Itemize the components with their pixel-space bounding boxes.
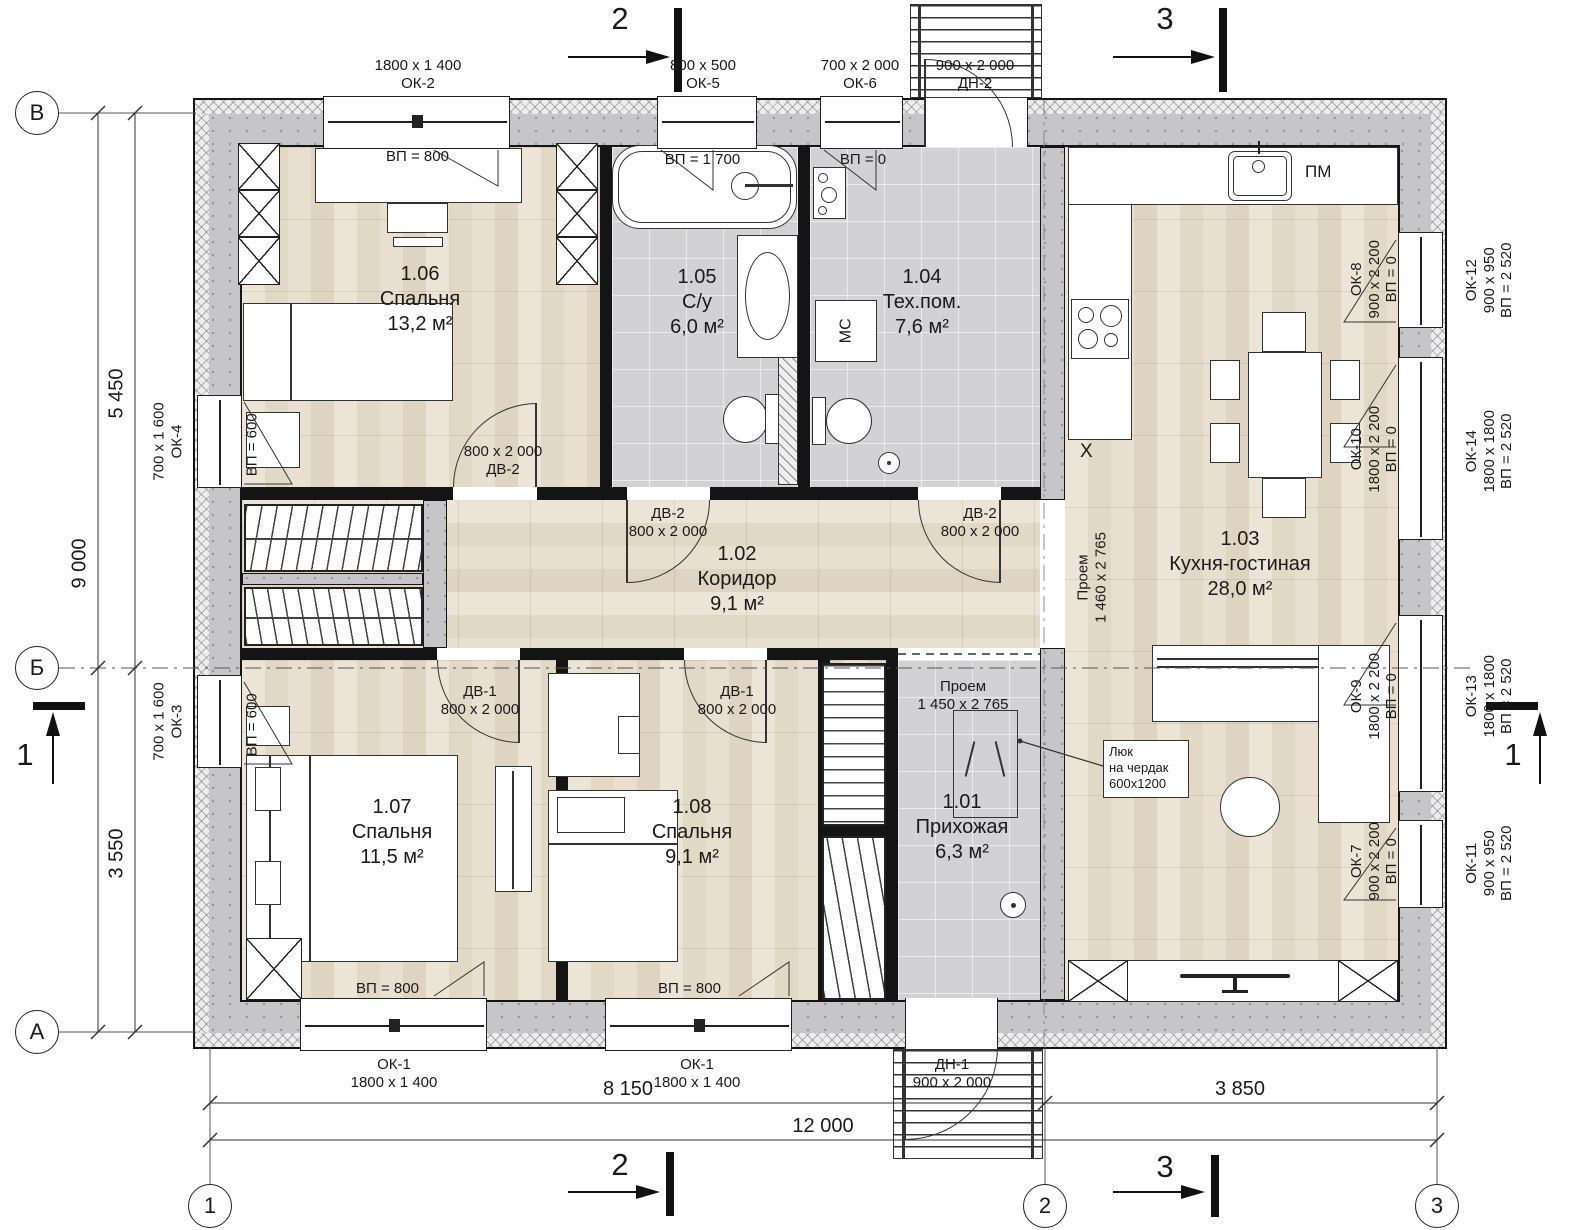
glazing <box>1420 237 1422 325</box>
axis-bubble-B: В <box>15 91 59 135</box>
window-code: ОК-13 <box>1463 641 1481 751</box>
attic-note-line2: на чердак <box>1109 760 1183 776</box>
window-size: 1800 x 2 200 <box>1365 636 1383 756</box>
dim-left-total: 9 000 <box>68 524 93 604</box>
boiler <box>813 167 846 219</box>
glazing <box>1420 620 1422 789</box>
section-arrowhead <box>1181 1185 1205 1199</box>
wardrobe-107 <box>246 938 302 1000</box>
mullion <box>389 1019 400 1032</box>
room-name: С/у <box>597 290 797 315</box>
sill-label: ВП = 2 520 <box>1498 396 1516 506</box>
boiler-knob <box>818 173 828 183</box>
toilet-tank-105 <box>765 394 779 444</box>
window-code: ОК-10 <box>1348 389 1366 509</box>
burner <box>1100 305 1122 327</box>
window-code: ОК-9 <box>1348 636 1366 756</box>
window-size: 1800 x 1 400 <box>324 1074 464 1092</box>
window-size: 900 x 2 200 <box>1365 219 1383 339</box>
door-code: ДВ-1 <box>677 683 797 701</box>
dining-chair <box>1262 478 1306 518</box>
section-arrowhead <box>46 712 60 736</box>
door-size: 800 x 2 000 <box>677 701 797 719</box>
window-label-ok1-1: ОК-1 1800 x 1 400 <box>324 1056 464 1091</box>
window-code: ОК-2 <box>348 75 488 93</box>
dim-tick <box>1430 1133 1444 1147</box>
door-size: 800 x 2 000 <box>608 523 728 541</box>
sill-label: ВП = 0 <box>1383 801 1401 921</box>
room-name: Спальня <box>320 287 520 312</box>
dim-tick <box>128 106 142 120</box>
dim-tick <box>91 106 105 120</box>
bath-partition <box>778 357 798 485</box>
door-label-107: ДВ-1 800 x 2 000 <box>420 683 540 718</box>
passage-label-corridor-kitchen: Проем 1 460 x 2 765 <box>1075 513 1110 643</box>
window-size: 900 x 950 <box>1480 808 1498 918</box>
door-gap-dn1 <box>905 998 998 1049</box>
sill-label: ВП = 0 <box>828 151 898 169</box>
window-ok4 <box>197 395 242 488</box>
window-size: 1800 x 1 400 <box>348 57 488 75</box>
room-name: Прихожая <box>862 815 1062 840</box>
tv-cabinet <box>1338 960 1398 1002</box>
room-number: 1.04 <box>822 265 1022 290</box>
door-code: ДВ-2 <box>608 505 728 523</box>
room-name: Спальня <box>292 820 492 845</box>
wardrobe-cell <box>556 143 598 190</box>
wardrobe-cell <box>238 143 280 190</box>
door-label-dn1: ДН-1 900 x 2 000 <box>882 1056 1022 1091</box>
room-area: 9,1 м² <box>637 592 837 617</box>
door-size: 900 x 2 000 <box>905 57 1045 75</box>
toilet-tank-104 <box>812 397 826 445</box>
desk-chair-108 <box>618 716 640 754</box>
tv-cabinet <box>1068 960 1128 1002</box>
window-code: ОК-7 <box>1348 801 1366 921</box>
door-code: ДН-2 <box>905 75 1045 93</box>
wall-corridor-top-2 <box>537 487 627 500</box>
section-arrowhead <box>636 1185 660 1199</box>
glazing <box>662 121 754 123</box>
passage-size: 1 460 x 2 765 <box>1092 513 1110 643</box>
section-number-top-2: 2 <box>600 2 640 36</box>
dim-tick <box>128 661 142 675</box>
hall-floor-drain <box>1000 892 1026 918</box>
window-ok3 <box>197 675 242 768</box>
dining-chair <box>1210 423 1240 463</box>
bed-pillow-line <box>290 304 292 400</box>
window-label-ok7: ОК-7 900 x 2 200 ВП = 0 <box>1348 801 1401 921</box>
dim-tick <box>1430 1096 1444 1110</box>
door-label-106: 800 x 2 000 ДВ-2 <box>443 443 563 478</box>
passage-size: 1 450 x 2 765 <box>893 696 1033 714</box>
room-label-105: 1.05 С/у 6,0 м² <box>597 265 797 340</box>
room-area: 9,1 м² <box>592 845 792 870</box>
window-label-ok2: 1800 x 1 400 ОК-2 <box>348 57 488 92</box>
room-area: 6,0 м² <box>597 315 797 340</box>
section-bar <box>33 702 85 710</box>
window-ok7-ok11 <box>1398 820 1443 908</box>
dresser-line <box>512 771 514 889</box>
door-code: ДВ-2 <box>920 505 1040 523</box>
floor-drain-dot <box>887 461 891 465</box>
section-number-bottom-3: 3 <box>1145 1150 1185 1184</box>
room-number: 1.05 <box>597 265 797 290</box>
window-ok8-ok12 <box>1398 232 1443 328</box>
window-size: 900 x 2 200 <box>1365 801 1383 921</box>
section-arrowhead <box>1191 50 1215 64</box>
window-ok10-ok14 <box>1398 357 1443 540</box>
door-label-bath: ДВ-2 800 x 2 000 <box>608 505 728 540</box>
attic-note-line3: 600x1200 <box>1109 776 1183 792</box>
room-label-103: 1.03 Кухня-гостиная 28,0 м² <box>1140 527 1340 602</box>
tv-stand <box>1233 978 1237 990</box>
dim-tick <box>128 1025 142 1039</box>
boiler-knob <box>821 187 837 203</box>
room-number: 1.06 <box>320 262 520 287</box>
pier-left-closet-divider <box>242 573 423 585</box>
glazing <box>1420 825 1422 905</box>
door-size: 800 x 2 000 <box>420 701 540 719</box>
window-size: 700 x 1 600 <box>151 387 169 497</box>
door-code: ДН-1 <box>882 1056 1022 1074</box>
wall-corridor-bottom-2 <box>520 648 684 660</box>
wall-corridor-bottom-1 <box>242 648 437 660</box>
axis-label: 1 <box>204 1193 216 1219</box>
glazing <box>219 680 221 765</box>
toilet-bowl-105 <box>723 396 768 443</box>
dining-chair <box>1262 312 1306 352</box>
window-label-ok3: 700 x 1 600 ОК-3 <box>151 667 186 777</box>
window-code: ОК-14 <box>1463 396 1481 506</box>
window-size: 700 x 1 600 <box>151 667 169 777</box>
window-label-ok13: ОК-13 1800 x 1800 ВП = 2 520 <box>1463 641 1516 751</box>
passage-name: Проем <box>1075 513 1093 643</box>
burner <box>1104 333 1118 347</box>
wall-corridor-top-3 <box>710 487 918 500</box>
door-size: 800 x 2 000 <box>443 443 563 461</box>
window-size: 900 x 950 <box>1480 225 1498 335</box>
dim-tick <box>91 1025 105 1039</box>
fridge-label: Х <box>1080 443 1093 461</box>
window-label-ok9: ОК-9 1800 x 2 200 ВП = 0 <box>1348 636 1401 756</box>
room-number: 1.02 <box>637 542 837 567</box>
sill-label: ВП = 2 520 <box>1498 641 1516 751</box>
tv-base <box>1222 990 1248 993</box>
glazing <box>825 121 900 123</box>
section-number-top-3: 3 <box>1145 2 1185 36</box>
section-arrowhead <box>1533 712 1547 736</box>
sill-label: ВП = 800 <box>370 148 465 166</box>
axis-label: 2 <box>1039 1193 1051 1219</box>
floor-plan-canvas: В Б А 1 2 3 2 3 2 3 1 1 5 450 9 000 3 55… <box>0 0 1570 1230</box>
window-ok5 <box>657 96 757 149</box>
room-area: 28,0 м² <box>1140 577 1340 602</box>
axis-bubble-3: 3 <box>1415 1184 1459 1228</box>
closet-corridor-upper <box>244 504 423 572</box>
closet-corridor-lower <box>244 587 423 646</box>
dishwasher-label: ПМ <box>1305 163 1331 181</box>
door-code: ДВ-2 <box>443 461 563 479</box>
hall-drain-dot <box>1011 903 1016 908</box>
room-area: 6,3 м² <box>862 840 1062 865</box>
section-bar <box>1211 1155 1219 1217</box>
section-number-bottom-2: 2 <box>600 1148 640 1182</box>
window-ok1-2 <box>605 998 792 1051</box>
room-name: Коридор <box>637 567 837 592</box>
door-label-tech: ДВ-2 800 x 2 000 <box>920 505 1040 540</box>
monitor-106 <box>393 237 443 247</box>
window-size: 1800 x 1 400 <box>627 1074 767 1092</box>
attic-note-box: Люк на чердак 600x1200 <box>1103 740 1189 798</box>
door-size: 900 x 2 000 <box>882 1074 1022 1092</box>
window-ok2 <box>323 96 510 149</box>
glazing <box>1420 362 1422 537</box>
room-number: 1.08 <box>592 795 792 820</box>
passage-label-hall: Проем 1 450 x 2 765 <box>893 678 1033 713</box>
room-label-108: 1.08 Спальня 9,1 м² <box>592 795 792 870</box>
sill-label: ВП = 0 <box>1383 219 1401 339</box>
desk-chair-106 <box>387 203 448 233</box>
dim-left-bottom: 3 550 <box>105 814 130 894</box>
wardrobe-cell <box>238 237 280 285</box>
dining-table <box>1248 352 1322 478</box>
window-code: ОК-12 <box>1463 225 1481 335</box>
sill-label: ВП = 0 <box>1383 636 1401 756</box>
boiler-knob <box>818 206 827 215</box>
room-number: 1.07 <box>292 795 492 820</box>
door-label-dn2: 900 x 2 000 ДН-2 <box>905 57 1045 92</box>
pillow <box>255 767 281 811</box>
floor-drain <box>878 452 900 474</box>
window-code: ОК-3 <box>168 667 186 777</box>
wardrobe-cell <box>238 190 280 237</box>
window-label-ok5: 800 x 500 ОК-5 <box>633 57 773 92</box>
window-code: ОК-1 <box>324 1056 464 1074</box>
window-label-ok11: ОК-11 900 x 950 ВП = 2 520 <box>1463 808 1516 918</box>
dim-tick <box>91 661 105 675</box>
wardrobe-cell <box>556 237 598 285</box>
window-size: 1800 x 1800 <box>1480 396 1498 506</box>
attic-hatch-mark <box>965 741 976 776</box>
sill-label: ВП = 800 <box>642 980 737 998</box>
room-area: 13,2 м² <box>320 312 520 337</box>
attic-hatch-mark <box>995 741 1006 776</box>
burner <box>1078 307 1094 323</box>
axis-label: А <box>30 1019 45 1045</box>
room-name: Спальня <box>592 820 792 845</box>
mullion <box>694 1019 705 1032</box>
sill-label: ВП = 800 <box>340 980 435 998</box>
mullion <box>412 115 423 128</box>
wall-corridor-top-4 <box>1001 487 1040 500</box>
axis-bubble-mid: Б <box>15 646 59 690</box>
window-code: ОК-8 <box>1348 219 1366 339</box>
glazing <box>219 400 221 485</box>
window-size: 800 x 500 <box>633 57 773 75</box>
pier-left-closet <box>423 500 447 648</box>
window-code: ОК-4 <box>168 387 186 497</box>
kitchen-sink <box>1228 151 1292 201</box>
axis-bubble-1: 1 <box>188 1184 232 1228</box>
axis-label: В <box>30 100 45 126</box>
door-size: 800 x 2 000 <box>920 523 1040 541</box>
dim-left-top: 5 450 <box>105 354 130 434</box>
passage-name: Проем <box>893 678 1033 696</box>
dining-chair <box>1210 360 1240 400</box>
sill-label-rot: ВП = 600 <box>243 685 261 765</box>
kitchen-faucet <box>1252 160 1265 173</box>
closet-shelf-line <box>246 538 421 540</box>
washer-label: МС <box>837 311 855 351</box>
window-size: 1800 x 1800 <box>1480 641 1498 751</box>
dresser-107 <box>495 766 532 892</box>
window-code: ОК-11 <box>1463 808 1481 918</box>
room-number: 1.01 <box>862 790 1062 815</box>
coffee-table <box>1220 777 1280 837</box>
window-label-ok12: ОК-12 900 x 950 ВП = 2 520 <box>1463 225 1516 335</box>
window-label-ok10: ОК-10 1800 x 2 200 ВП = 0 <box>1348 389 1401 509</box>
room-area: 11,5 м² <box>292 845 492 870</box>
room-number: 1.03 <box>1140 527 1340 552</box>
section-bar <box>1219 8 1227 92</box>
axis-label: 3 <box>1431 1193 1443 1219</box>
axis-bubble-2: 2 <box>1023 1184 1067 1228</box>
toilet-bowl-104 <box>826 398 872 444</box>
axis-bubble-A: А <box>15 1010 59 1054</box>
window-ok6 <box>820 96 903 149</box>
wall-corridor-top-1 <box>242 487 453 500</box>
room-label-106: 1.06 Спальня 13,2 м² <box>320 262 520 337</box>
window-code: ОК-5 <box>633 75 773 93</box>
stove <box>1071 299 1129 359</box>
section-bar <box>666 1152 674 1216</box>
window-label-ok8: ОК-8 900 x 2 200 ВП = 0 <box>1348 219 1401 339</box>
room-label-101: 1.01 Прихожая 6,3 м² <box>862 790 1062 865</box>
dim-tick <box>203 1133 217 1147</box>
sill-label: ВП = 2 520 <box>1498 808 1516 918</box>
door-label-108: ДВ-1 800 x 2 000 <box>677 683 797 718</box>
dim-tick <box>203 1096 217 1110</box>
wall-105-104 <box>798 147 810 487</box>
closet-shelf-line <box>246 617 421 619</box>
window-ok1-1 <box>300 998 487 1051</box>
dim-bottom-total: 12 000 <box>763 1114 883 1139</box>
axis-label: Б <box>30 655 44 681</box>
door-code: ДВ-1 <box>420 683 540 701</box>
room-label-102: 1.02 Коридор 9,1 м² <box>637 542 837 617</box>
burner <box>1078 329 1098 349</box>
window-label-ok4: 700 x 1 600 ОК-4 <box>151 387 186 497</box>
window-ok9-ok13 <box>1398 615 1443 792</box>
attic-note-line1: Люк <box>1109 744 1183 760</box>
pillow <box>255 861 281 905</box>
kitchen-faucet-stem <box>1258 141 1260 154</box>
sill-label: ВП = 1 700 <box>650 151 755 169</box>
window-size: 1800 x 2 200 <box>1365 389 1383 509</box>
window-label-ok1-2: ОК-1 1800 x 1 400 <box>627 1056 767 1091</box>
window-label-ok14: ОК-14 1800 x 1800 ВП = 2 520 <box>1463 396 1516 506</box>
faucet-icon <box>745 184 793 187</box>
window-code: ОК-1 <box>627 1056 767 1074</box>
wardrobe-cell <box>556 190 598 237</box>
room-name: Кухня-гостиная <box>1140 552 1340 577</box>
sill-label: ВП = 2 520 <box>1498 225 1516 335</box>
room-label-107: 1.07 Спальня 11,5 м² <box>292 795 492 870</box>
stair-rail <box>1031 1050 1034 1158</box>
wall-corridor-bottom-3 <box>767 648 898 660</box>
section-number-left-1: 1 <box>5 738 45 772</box>
sill-label: ВП = 0 <box>1383 389 1401 509</box>
sill-label-rot: ВП = 600 <box>243 405 261 485</box>
pier-kitchen-upper <box>1040 147 1065 500</box>
dim-bottom-right: 3 850 <box>1180 1077 1300 1102</box>
